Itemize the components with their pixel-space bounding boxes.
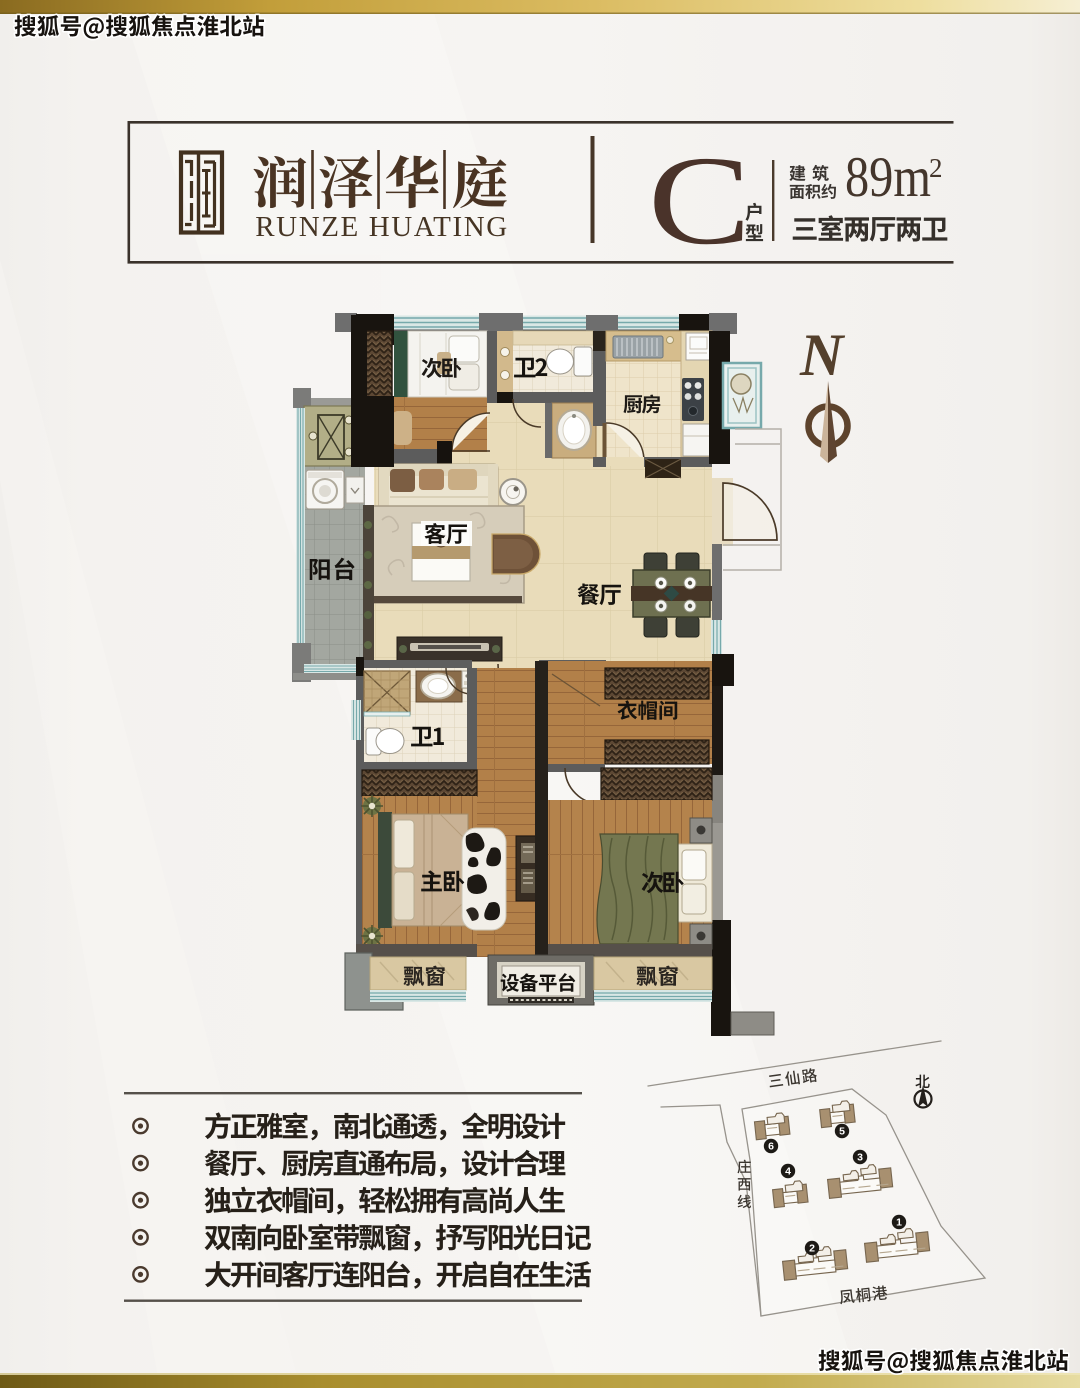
svg-text:1: 1 [896,1217,902,1229]
svg-text:2: 2 [929,153,943,183]
svg-text:6: 6 [768,1141,774,1153]
svg-text:RUNZE HUATING: RUNZE HUATING [255,211,509,243]
svg-text:3: 3 [857,1152,863,1164]
svg-text:C: C [648,131,751,271]
svg-text:5: 5 [839,1126,845,1138]
svg-text:4: 4 [785,1166,791,1178]
svg-text:N: N [799,322,846,388]
svg-text:2: 2 [809,1243,815,1255]
svg-text:89m: 89m [845,146,931,209]
